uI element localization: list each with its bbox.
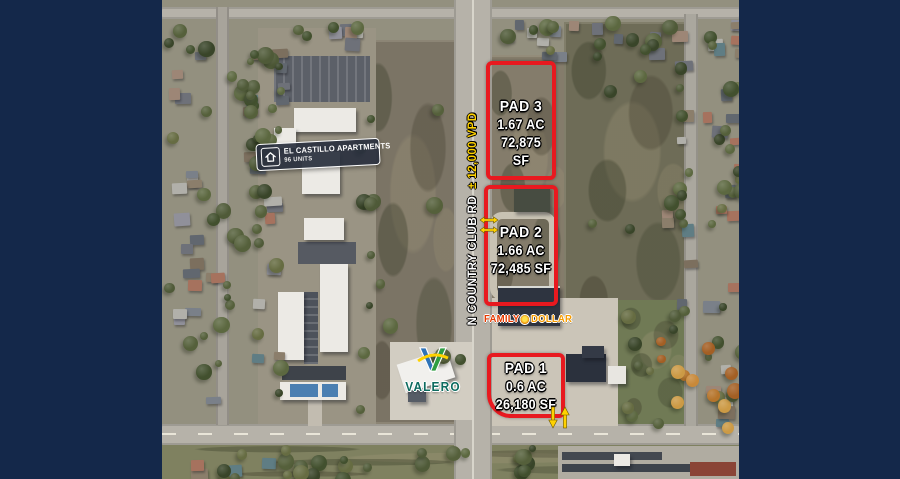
pad-2-label: PAD 2 1.66 AC 72,485 SF [490, 223, 551, 278]
tree [593, 52, 602, 61]
house [614, 34, 624, 44]
house [592, 23, 603, 35]
tree [625, 224, 635, 234]
tree [278, 453, 295, 470]
tree [257, 47, 274, 64]
pad-name: PAD 1 [493, 359, 558, 378]
house [276, 95, 290, 105]
house [210, 272, 225, 283]
marketing-flyer-frame: PAD 3 1.67 AC 72,875 SF PAD 2 1.66 AC 72… [0, 0, 900, 479]
house [173, 308, 187, 318]
tree [733, 166, 739, 177]
house [185, 307, 201, 315]
house [181, 244, 193, 254]
tree [366, 302, 373, 309]
road-label: N COUNTRY CLUB RD ± 12,000 VPD [466, 121, 480, 317]
tree [196, 364, 211, 379]
tree [283, 471, 291, 479]
tree [302, 31, 312, 41]
house [734, 49, 739, 59]
tree [255, 205, 267, 217]
house [344, 37, 359, 51]
tree [594, 38, 606, 50]
tree [426, 197, 443, 214]
tree [244, 105, 258, 119]
tree [257, 184, 272, 199]
access-arrow-horizontal [479, 216, 499, 224]
house [537, 38, 549, 46]
pad-sqft: 72,875 SF [492, 134, 550, 170]
tree [173, 24, 187, 38]
tree [653, 418, 664, 429]
tree [363, 463, 372, 472]
house [174, 212, 191, 226]
tree [656, 337, 666, 347]
house [702, 112, 712, 123]
house [273, 352, 284, 360]
tree [281, 445, 292, 456]
aerial-map: PAD 3 1.67 AC 72,875 SF PAD 2 1.66 AC 72… [162, 0, 739, 479]
pad-acres: 1.67 AC [492, 116, 550, 134]
house [171, 183, 187, 194]
tree [588, 219, 597, 228]
house [677, 136, 687, 144]
family-dollar-logo: FAMILY DOLLAR [484, 314, 572, 325]
tree [432, 104, 444, 116]
tree [719, 303, 726, 310]
tree [358, 347, 370, 359]
tree [227, 71, 238, 82]
tree [246, 91, 254, 99]
tree [727, 383, 739, 399]
tree [657, 355, 666, 364]
tree [254, 238, 264, 248]
tree [252, 328, 264, 340]
valero-logo: VALERO [398, 346, 468, 394]
tree [605, 16, 621, 32]
tree [676, 84, 684, 92]
tree [718, 399, 731, 412]
tree [273, 360, 289, 376]
tree [685, 168, 694, 177]
house [172, 69, 184, 79]
tree [725, 144, 735, 154]
family-dollar-word1: FAMILY [484, 314, 519, 325]
access-arrow-down [548, 406, 558, 429]
tree [720, 125, 732, 137]
tree [675, 62, 688, 75]
house [262, 457, 276, 468]
pad-acres: 0.6 AC [493, 378, 558, 396]
sun-icon [521, 315, 530, 324]
tree [164, 283, 174, 293]
house [168, 88, 180, 100]
pad-3-label: PAD 3 1.67 AC 72,875 SF [492, 97, 550, 170]
pad-acres: 1.66 AC [490, 242, 551, 260]
tree [664, 195, 679, 210]
tree [725, 367, 738, 380]
tree [234, 235, 251, 252]
house [191, 460, 204, 472]
tree [722, 422, 734, 434]
road-name: N COUNTRY CLUB RD [467, 196, 479, 325]
house-icon [261, 147, 281, 167]
tree [500, 29, 516, 45]
tree [702, 342, 714, 354]
tree [167, 132, 179, 144]
house [183, 269, 200, 279]
tree [446, 446, 461, 461]
tree [621, 310, 635, 324]
family-dollar-word2: DOLLAR [531, 314, 572, 325]
tree [529, 25, 538, 34]
house [728, 283, 739, 292]
tree [461, 448, 471, 458]
pad-3-outline: PAD 3 1.67 AC 72,875 SF [486, 61, 556, 180]
tree [186, 45, 195, 54]
house [727, 210, 739, 220]
house [726, 114, 739, 123]
access-arrow-up [560, 406, 570, 429]
pad-2-outline: PAD 2 1.66 AC 72,485 SF [484, 185, 558, 306]
tree [640, 44, 651, 55]
house [569, 21, 579, 31]
tree [247, 58, 254, 65]
tree [269, 258, 284, 273]
tree [207, 213, 220, 226]
tree [735, 344, 739, 361]
house [252, 354, 265, 364]
houses-and-trees [162, 0, 739, 479]
house [187, 180, 203, 189]
tree [198, 41, 215, 58]
tree [383, 318, 399, 334]
tree [213, 317, 229, 333]
tree [669, 310, 681, 322]
tree [252, 224, 262, 234]
pad-name: PAD 2 [490, 223, 551, 242]
tree [183, 336, 198, 351]
house [702, 301, 719, 313]
tree [224, 294, 231, 301]
tree [275, 389, 283, 397]
tree [201, 106, 212, 117]
tree [356, 405, 365, 414]
tree [646, 367, 654, 375]
tree [164, 38, 174, 48]
house [190, 257, 205, 269]
tree [217, 464, 231, 478]
house [186, 171, 198, 178]
house [205, 397, 220, 405]
tree [197, 188, 210, 201]
tree [364, 197, 378, 211]
tree [634, 70, 647, 83]
tree [200, 332, 208, 340]
tree [708, 41, 717, 50]
tree [275, 126, 282, 133]
tree [628, 337, 642, 351]
tree [671, 365, 685, 379]
tree [723, 81, 739, 97]
tree [223, 281, 231, 289]
tree [351, 21, 365, 35]
pad-name: PAD 3 [492, 97, 550, 116]
house [730, 22, 739, 30]
tree [708, 220, 716, 228]
house [730, 36, 739, 46]
house [515, 20, 524, 30]
valero-v-icon [416, 346, 450, 374]
house [684, 259, 698, 268]
tree [225, 300, 235, 310]
tree [671, 396, 684, 409]
tree [622, 402, 633, 413]
tree [417, 448, 427, 458]
tree [268, 104, 277, 113]
tree [518, 465, 530, 477]
tree [255, 128, 271, 144]
access-arrow-horizontal [479, 226, 499, 234]
tree [669, 325, 678, 334]
pad-sqft: 72,485 SF [490, 260, 551, 278]
tree [277, 87, 285, 95]
tree [335, 472, 351, 479]
tree [376, 279, 386, 289]
tree [626, 33, 640, 47]
tree [293, 465, 309, 479]
house [252, 299, 264, 310]
house [188, 280, 202, 291]
valero-wordmark: VALERO [400, 380, 467, 394]
tree [367, 251, 375, 259]
tree [547, 21, 559, 33]
tree [686, 374, 699, 387]
tree [604, 85, 618, 99]
tree [237, 79, 249, 91]
tree [215, 360, 222, 367]
tree [634, 361, 643, 370]
tree [340, 456, 348, 464]
traffic-count: ± 12,000 VPD [467, 113, 479, 189]
tree [415, 456, 431, 472]
tree [237, 449, 248, 460]
tree [367, 115, 376, 124]
tree [529, 445, 537, 453]
house [662, 218, 674, 228]
tree [707, 389, 720, 402]
